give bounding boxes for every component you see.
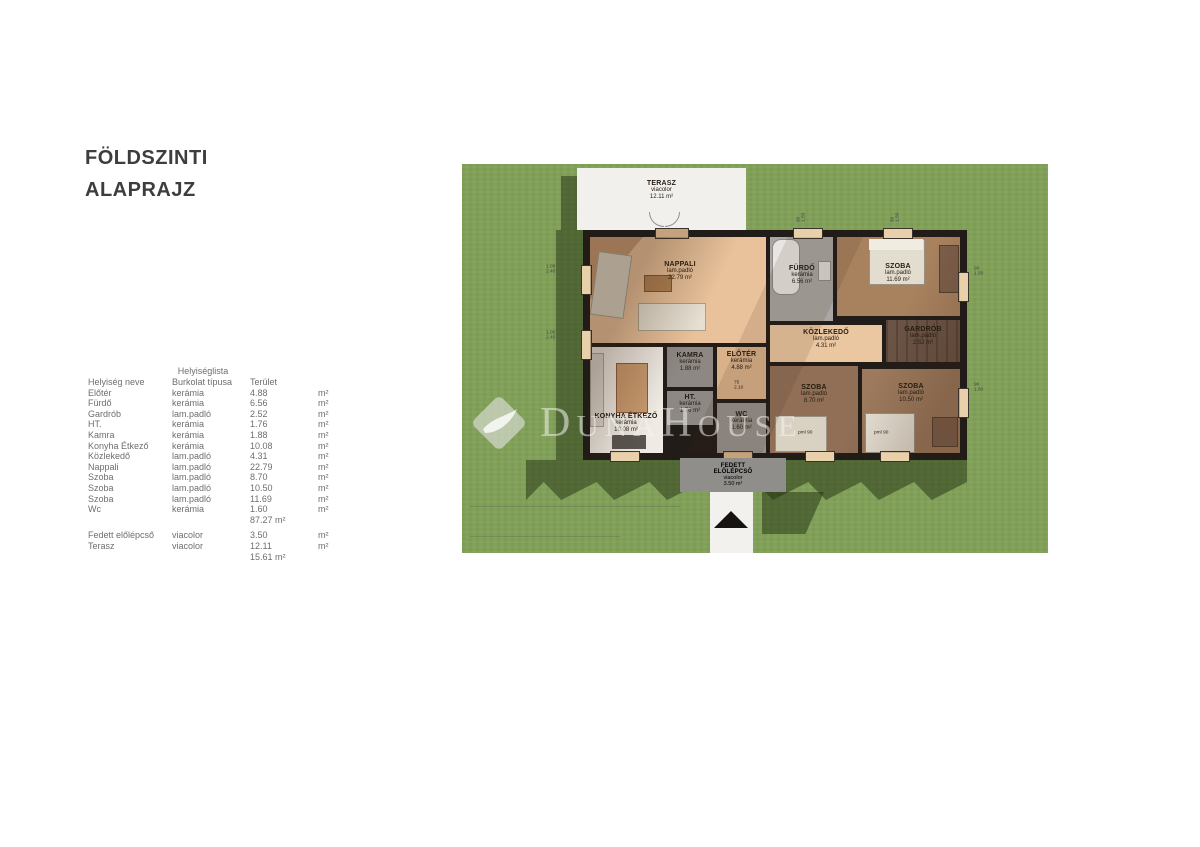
site-plan: TERASZ viacolor 12.11 m² NAPPALI lam.pad… bbox=[462, 164, 1048, 553]
window bbox=[880, 451, 910, 462]
col-header-type: Burkolat típusa bbox=[172, 377, 250, 388]
table-row: Teraszviacolor12.11m² bbox=[88, 541, 340, 552]
table-subtotal-row: 87.27 m² bbox=[88, 515, 340, 526]
window bbox=[883, 228, 913, 239]
room-szoba-felso: SZOBA lam.padló 11.69 m² bbox=[837, 237, 960, 316]
page-title-line2: ALAPRAJZ bbox=[85, 174, 208, 206]
door-swing-icon bbox=[665, 212, 680, 227]
window bbox=[581, 265, 592, 295]
room-kozlekedo: KÖZLEKEDŐ lam.padló 4.31 m² bbox=[770, 325, 882, 362]
terrace-shadow bbox=[561, 176, 577, 230]
room-furdo: FÜRDŐ kerámia 6.56 m² bbox=[770, 237, 833, 321]
bed bbox=[865, 413, 915, 453]
dimension-label: pml 90 bbox=[874, 430, 888, 435]
window bbox=[805, 451, 835, 462]
col-header-name: Helyiség neve bbox=[88, 377, 172, 388]
survey-line bbox=[470, 506, 680, 507]
dimension-label: 1.00 2.40 bbox=[546, 330, 555, 340]
table-row: Kamrakerámia1.88m² bbox=[88, 430, 340, 441]
desk bbox=[932, 417, 958, 447]
table-row: Szobalam.padló10.50m² bbox=[88, 483, 340, 494]
floorplan-page: FÖLDSZINTI ALAPRAJZ Helyiséglista Helyis… bbox=[0, 0, 1200, 847]
room-name: TERASZ bbox=[577, 180, 746, 187]
table-row: Nappalilam.padló22.79m² bbox=[88, 462, 340, 473]
room-ht: HT. kerámia 1.76 m² bbox=[667, 391, 713, 425]
table-title: Helyiséglista bbox=[88, 366, 318, 377]
room-list-table: Helyiséglista Helyiség neve Burkolat típ… bbox=[88, 366, 340, 562]
door-swing-icon bbox=[649, 212, 664, 227]
room-nappali: NAPPALI lam.padló 22.79 m² bbox=[590, 237, 766, 343]
table-row: Fedett előlépcsőviacolor3.50m² bbox=[88, 530, 340, 541]
table-header-row: Helyiség neve Burkolat típusa Terület bbox=[88, 377, 340, 388]
page-title-line1: FÖLDSZINTI bbox=[85, 142, 208, 174]
dimension-label: pml 90 bbox=[798, 430, 812, 435]
porch-shadow bbox=[762, 492, 824, 534]
house-outline: NAPPALI lam.padló 22.79 m² FÜRDŐ kerámia… bbox=[583, 230, 967, 460]
room-wc: WC kerámia 1.60 m² bbox=[717, 403, 766, 453]
dining-table bbox=[616, 363, 648, 413]
window bbox=[958, 388, 969, 418]
dimension-label: 90 1.50 bbox=[796, 213, 806, 222]
terrace-door bbox=[655, 228, 689, 239]
window bbox=[610, 451, 640, 462]
window bbox=[958, 272, 969, 302]
house-shadow-left bbox=[556, 230, 583, 460]
window bbox=[793, 228, 823, 239]
table-row: Előtérkerámia4.88m² bbox=[88, 388, 340, 399]
bed-pillow bbox=[869, 239, 923, 250]
window bbox=[581, 330, 592, 360]
entrance-arrow-icon bbox=[714, 511, 748, 528]
subtotal-main: 87.27 m² bbox=[250, 515, 318, 526]
table-row: Közlekedőlam.padló4.31m² bbox=[88, 451, 340, 462]
table-row: Fürdőkerámia6.56m² bbox=[88, 398, 340, 409]
room-szoba-kozep: SZOBA lam.padló 8.70 m² bbox=[770, 366, 858, 453]
survey-line bbox=[470, 536, 620, 537]
page-title: FÖLDSZINTI ALAPRAJZ bbox=[85, 142, 208, 206]
sofa bbox=[638, 303, 706, 331]
dimension-label: 90 1.50 bbox=[974, 266, 983, 276]
dimension-label: 90 1.50 bbox=[974, 382, 983, 392]
room-area: 12.11 m² bbox=[577, 194, 746, 201]
wardrobe bbox=[939, 245, 959, 293]
table-row: Szobalam.padló11.69m² bbox=[88, 494, 340, 505]
room-szoba-jobb: SZOBA lam.padló 10.50 m² bbox=[862, 369, 960, 453]
stove bbox=[612, 435, 646, 449]
room-terasz: TERASZ viacolor 12.11 m² bbox=[577, 168, 746, 230]
room-elolepcso: FEDETT ELŐLÉPCSŐ viacolor 3.50 m² bbox=[680, 458, 786, 492]
dunahouse-logo-icon bbox=[464, 388, 534, 458]
dimension-label: 1.00 2.40 bbox=[546, 264, 555, 274]
room-eloter: ELŐTÉR kerámia 4.88 m² bbox=[717, 347, 766, 399]
dimension-label: 90 1.50 bbox=[890, 213, 900, 222]
table-row: HT.kerámia1.76m² bbox=[88, 419, 340, 430]
room-gardrob: GARDRÓB lam.padló 2.52 m² bbox=[886, 320, 960, 362]
room-konyha: KONYHA ÉTKEZŐ kerámia 10.08 m² bbox=[590, 347, 663, 453]
table-row: Gardróblam.padló2.52m² bbox=[88, 409, 340, 420]
table-subtotal-row: 15.61 m² bbox=[88, 552, 340, 563]
col-header-area: Terület bbox=[250, 377, 318, 388]
dimension-label: 75 2.10 bbox=[734, 380, 743, 390]
table-row: Wckerámia1.60m² bbox=[88, 504, 340, 515]
table-row: Konyha Étkezőkerámia10.08m² bbox=[88, 441, 340, 452]
table-row: Szobalam.padló8.70m² bbox=[88, 472, 340, 483]
room-kamra: KAMRA kerámia 1.88 m² bbox=[667, 347, 713, 387]
subtotal-extra: 15.61 m² bbox=[250, 552, 318, 563]
